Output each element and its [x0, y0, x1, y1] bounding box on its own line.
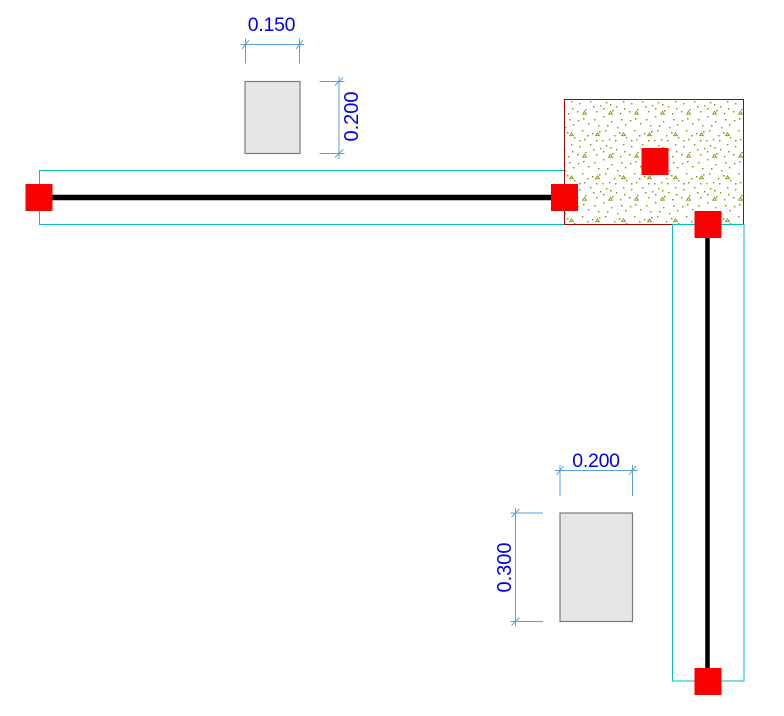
svg-text:0.200: 0.200	[572, 450, 620, 472]
svg-text:0.200: 0.200	[341, 91, 363, 141]
svg-text:0.150: 0.150	[248, 14, 296, 36]
svg-text:0.300: 0.300	[494, 542, 516, 592]
